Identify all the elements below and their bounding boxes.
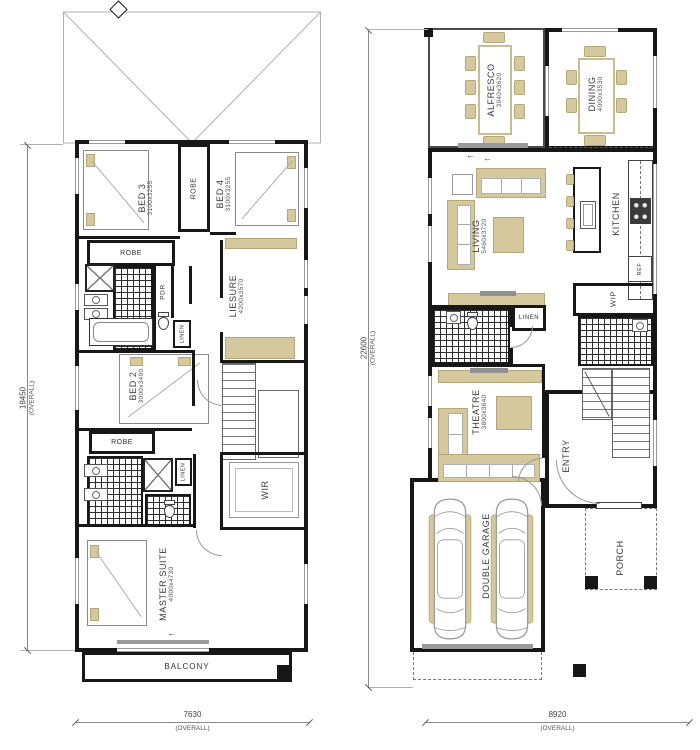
wall <box>432 364 542 367</box>
window <box>304 168 308 208</box>
robe-label: ROBE <box>120 250 142 257</box>
wall <box>79 524 193 527</box>
wall <box>220 332 223 363</box>
wall <box>510 305 513 327</box>
garage-door <box>422 644 533 649</box>
window <box>75 558 79 604</box>
wall <box>573 283 576 316</box>
vanity-basin <box>446 311 461 324</box>
room-label-porch: PORCH <box>615 540 625 576</box>
chair-symbol <box>514 104 525 119</box>
bed-symbol <box>87 540 147 626</box>
balcony: BALCONY <box>82 652 292 682</box>
sofa-symbol <box>476 168 546 198</box>
robe-bed34: ROBE <box>178 144 210 232</box>
chair-symbol <box>584 46 606 57</box>
chair-symbol <box>514 80 525 95</box>
window <box>229 140 275 144</box>
laundry-sink <box>632 319 648 332</box>
vanity-basin <box>84 294 108 306</box>
chair-symbol <box>584 135 606 146</box>
robe-bed2: ROBE <box>89 431 155 454</box>
window-seat <box>225 337 295 359</box>
wall <box>210 232 236 235</box>
wall <box>189 266 192 304</box>
window <box>75 284 79 310</box>
toilet-symbol <box>466 312 479 330</box>
bed-symbol <box>235 152 299 226</box>
linen-label: LINEN <box>181 463 187 482</box>
room-label-alfresco: ALFRESCO3940x3620 <box>486 63 504 116</box>
toilet-symbol <box>157 312 170 330</box>
dimension-qualifier-upper-width: (OVERALL) <box>75 725 310 732</box>
car-symbol <box>488 496 536 642</box>
window <box>562 28 618 32</box>
wall <box>192 350 195 406</box>
wall <box>220 527 304 530</box>
chair-symbol <box>566 98 577 113</box>
linen-label: LINEN <box>519 315 539 321</box>
ceiling-break-line <box>549 147 653 148</box>
window <box>653 56 657 108</box>
armchair-symbol <box>452 174 473 195</box>
window <box>89 140 125 144</box>
room-label-dining: DINING4000x3530 <box>587 76 605 111</box>
room-label-kitchen: KITCHEN <box>611 192 621 236</box>
pier <box>573 664 586 677</box>
bed-fold-line <box>236 153 298 225</box>
linen-label: LINEN <box>179 325 185 344</box>
pier <box>585 576 598 589</box>
driveway-outline <box>413 652 542 680</box>
door-slide-arrow: ← <box>167 628 176 638</box>
stairs <box>222 363 256 460</box>
door-slide-arrow: ← <box>466 150 475 160</box>
wall <box>79 236 180 239</box>
chair-symbol <box>465 56 476 71</box>
window <box>75 366 79 410</box>
balcony-step <box>277 665 289 679</box>
vanity-basin <box>84 464 108 477</box>
room-label-living: LIVING5460x3720 <box>471 219 489 254</box>
room-label-theatre: THEATRE3800x3640 <box>471 389 489 435</box>
room-label-wip: WIP <box>610 291 619 307</box>
room-label-bed2: BED 23000x3490 <box>128 369 146 404</box>
sliding-door <box>458 143 528 148</box>
front-door-sill <box>596 502 642 509</box>
wall <box>79 350 192 353</box>
wall <box>220 452 223 530</box>
tv-symbol <box>480 291 516 296</box>
wall <box>542 364 545 458</box>
extension-line <box>368 687 413 688</box>
floor-plan-sheet: BED 33100x3255 ROBE BED 43100x3255 ROBE <box>0 0 700 750</box>
chair-symbol <box>566 70 577 85</box>
room-label-balcony: BALCONY <box>85 662 289 671</box>
chair-symbol <box>483 32 505 43</box>
window <box>428 226 432 262</box>
wall <box>220 452 304 455</box>
ground-floor-plan: ALFRESCO3940x3620 ← DINING4000x3530 LIVI… <box>410 28 658 688</box>
wall <box>193 454 196 528</box>
dimension-label-ground-width: 8920 <box>425 710 690 719</box>
window <box>545 66 549 116</box>
sink-symbol <box>580 201 596 229</box>
door-slide-arrow: ← <box>483 153 492 163</box>
room-label-wir: WIR <box>260 480 270 499</box>
dimension-label-upper-height: 18450 (OVERALL) <box>18 381 35 415</box>
window <box>304 260 308 288</box>
room-label-bed3: BED 33100x3255 <box>137 181 155 216</box>
wall <box>171 266 174 318</box>
toilet-symbol <box>163 500 176 518</box>
chair-symbol <box>514 56 525 71</box>
linen-cupboard: LINEN <box>175 458 192 486</box>
island-bench <box>573 167 601 253</box>
window <box>428 178 432 214</box>
window <box>304 296 308 324</box>
dimension-qualifier-ground-width: (OVERALL) <box>425 725 690 732</box>
room-label-pdr: PDR <box>159 284 166 300</box>
stool-symbol <box>566 240 574 251</box>
stool-symbol <box>566 174 574 185</box>
extension-line <box>368 29 428 30</box>
stairs <box>582 368 612 420</box>
stairs <box>612 368 650 458</box>
stair-void <box>258 390 299 458</box>
sliding-door <box>117 640 209 644</box>
window-seat <box>225 238 297 249</box>
chair-symbol <box>616 70 627 85</box>
bed-fold-line <box>88 541 146 625</box>
robe-label: ROBE <box>111 439 133 446</box>
dimension-line-ground-width <box>425 722 690 723</box>
coffee-table-symbol <box>493 217 524 253</box>
room-label-liesure: LIESURE4200x3570 <box>228 275 246 318</box>
robe-bed3: ROBE <box>87 240 175 266</box>
robe-label: ROBE <box>191 177 198 199</box>
fridge-label: REF <box>637 263 643 276</box>
door-arc <box>196 530 222 556</box>
room-label-master: MASTER SUITE4000x4730 <box>158 547 176 621</box>
stool-symbol <box>566 196 574 207</box>
chair-symbol <box>465 80 476 95</box>
dimension-label-upper-width: 7630 <box>75 710 310 719</box>
window <box>653 420 657 466</box>
upper-floor-plan: BED 33100x3255 ROBE BED 43100x3255 ROBE <box>75 140 308 652</box>
side-table-symbol <box>496 396 532 430</box>
tv-symbol <box>470 368 508 373</box>
window <box>75 158 79 194</box>
dimension-line-upper-width <box>75 722 310 723</box>
window <box>428 376 432 406</box>
cooktop-symbol <box>630 198 651 224</box>
stool-symbol <box>566 218 574 229</box>
window <box>304 564 308 604</box>
wall <box>220 240 223 298</box>
chair-symbol <box>465 104 476 119</box>
pier <box>644 576 657 589</box>
shower-symbol <box>143 458 173 492</box>
window <box>428 418 432 448</box>
bath-symbol <box>89 318 153 346</box>
shower-symbol <box>85 264 115 292</box>
window <box>653 164 657 294</box>
chair-symbol <box>616 98 627 113</box>
wall <box>573 283 653 286</box>
car-symbol <box>426 496 474 642</box>
stair-rail-line <box>583 369 611 419</box>
linen-cupboard: LINEN <box>173 320 191 348</box>
wall <box>153 266 156 350</box>
vanity-basin <box>84 488 108 501</box>
dimension-label-ground-height: 22600 (OVERALL) <box>359 331 376 365</box>
roof-outline <box>63 10 321 144</box>
room-label-bed4: BED 43100x3255 <box>215 177 233 212</box>
